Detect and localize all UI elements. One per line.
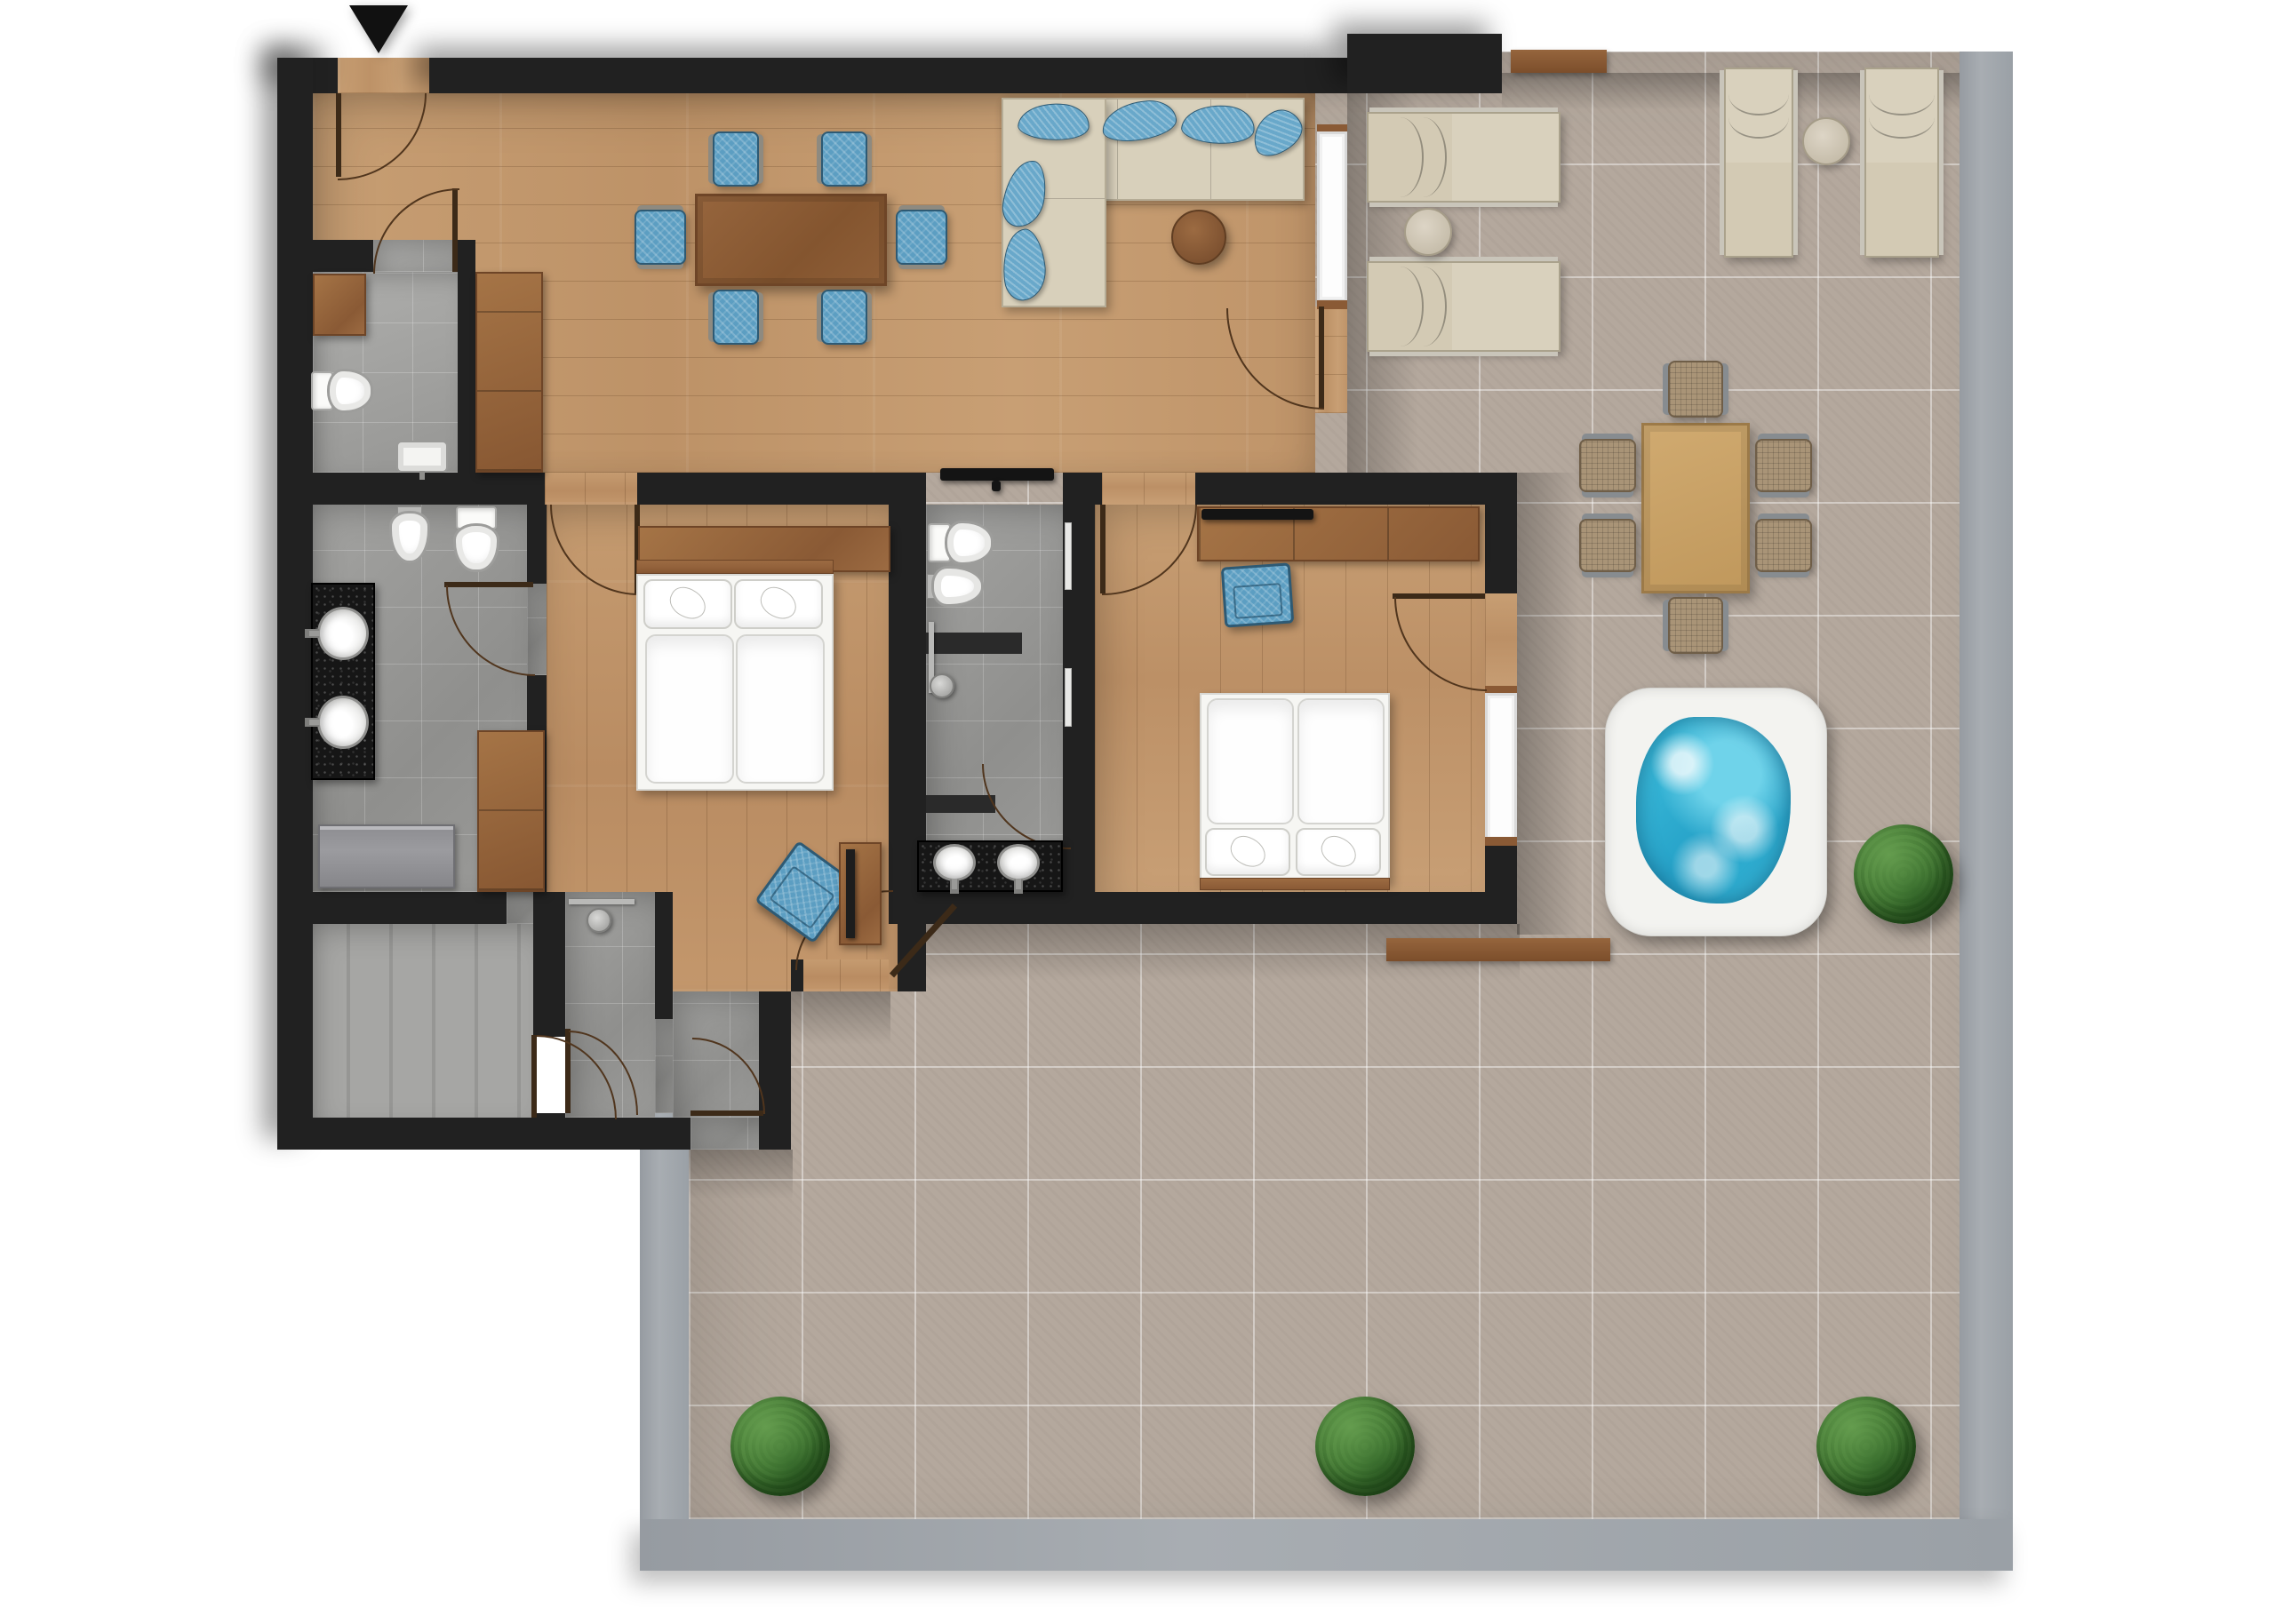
bathroom2-sink [997, 844, 1040, 881]
bathroom1-toilet [453, 506, 499, 572]
bedroom1-desk-screen [846, 849, 855, 938]
bedroom2-mattress [1297, 698, 1385, 824]
furniture-layer [0, 0, 2275, 1624]
coffee-table [1171, 210, 1226, 265]
lounger-side-table [1802, 117, 1850, 165]
entrance-arrow-icon [349, 5, 408, 53]
bush [730, 1397, 830, 1496]
bedroom1-headboard [636, 560, 834, 574]
terrace-step [1386, 938, 1610, 961]
bathroom1-wardrobe [477, 730, 545, 892]
shower-rail [569, 899, 635, 904]
outdoor-chair [1579, 439, 1636, 492]
shower-head [587, 908, 611, 933]
floor-plan [0, 0, 2275, 1624]
dining-chair [821, 290, 867, 345]
outdoor-chair [1668, 361, 1723, 418]
bush [1816, 1397, 1916, 1496]
bathroom1-washer [318, 824, 455, 888]
wall-tv [940, 468, 1054, 481]
bush [1854, 824, 1953, 924]
outdoor-chair [1755, 519, 1812, 572]
bedroom2-pillow [1205, 828, 1290, 876]
sun-lounger [1367, 261, 1561, 352]
lounger-side-table [1404, 208, 1452, 256]
bathroom2-sink [933, 844, 976, 881]
sun-lounger [1864, 68, 1939, 258]
bedroom2-headboard [1200, 878, 1390, 890]
bathroom2-shower-head [930, 673, 954, 698]
dining-chair [821, 131, 867, 187]
sun-lounger [1367, 112, 1561, 203]
terrace-threshold [1511, 50, 1607, 73]
dining-table [695, 194, 887, 286]
outdoor-chair [1668, 597, 1723, 654]
dining-chair [713, 131, 759, 187]
hot-tub [1605, 688, 1827, 936]
wc-shelf [313, 274, 366, 336]
bedroom1-mattress [645, 634, 734, 784]
bedroom1-mattress [736, 634, 825, 784]
wc-washbasin [396, 441, 448, 473]
bedroom1-pillow [643, 579, 732, 629]
bush [1315, 1397, 1415, 1496]
bathroom2-bidet [927, 566, 984, 607]
bathroom1-bidet [389, 506, 430, 563]
outdoor-dining-table [1641, 423, 1750, 593]
hall-wardrobe [475, 272, 543, 473]
wall-tv-mount [992, 481, 1001, 491]
bedroom2-armchair [1221, 562, 1295, 627]
dining-chair [713, 290, 759, 345]
bedroom2-mattress [1207, 698, 1294, 824]
bathroom1-sink [317, 607, 369, 660]
outdoor-chair [1579, 519, 1636, 572]
bedroom2-pillow [1296, 828, 1381, 876]
bathroom2-toilet [928, 521, 994, 565]
sun-lounger [1724, 68, 1793, 258]
wc-toilet [311, 369, 373, 413]
bedroom2-tv [1201, 509, 1313, 520]
outdoor-chair [1755, 439, 1812, 492]
bedroom1-pillow [734, 579, 823, 629]
dining-chair [635, 210, 686, 265]
bathroom1-sink [317, 696, 369, 749]
dining-chair [896, 210, 947, 265]
